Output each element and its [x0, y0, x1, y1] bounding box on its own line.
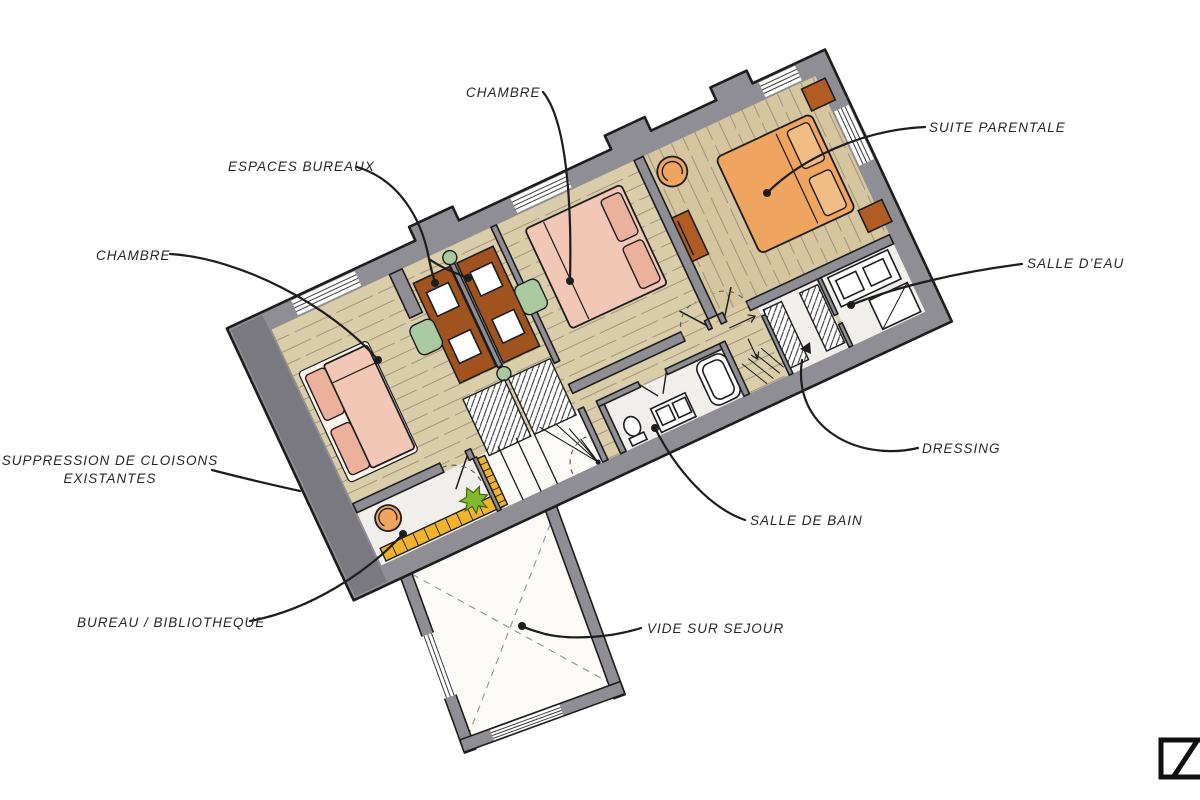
label-text: ESPACES BUREAUX	[228, 159, 375, 174]
logo-z-icon	[1161, 740, 1200, 777]
label-text: CHAMBRE	[96, 248, 171, 263]
label-text: VIDE SUR SEJOUR	[647, 621, 784, 636]
label-text: SALLE D’EAU	[1027, 256, 1124, 271]
label-text: SALLE DE BAIN	[750, 513, 863, 528]
label-text: EXISTANTES	[63, 471, 156, 486]
floor-plan-canvas: CHAMBRE SUITE PARENTALE ESPACES BUREAUX …	[0, 0, 1200, 800]
label-text: SUITE PARENTALE	[929, 120, 1066, 135]
label-text: DRESSING	[922, 441, 1001, 456]
label-text: CHAMBRE	[466, 85, 541, 100]
floor-plan-document: CHAMBRE SUITE PARENTALE ESPACES BUREAUX …	[0, 0, 1200, 800]
label-text: SUPPRESSION DE CLOISONS	[2, 453, 219, 468]
label-suppression-cloisons: SUPPRESSION DE CLOISONS EXISTANTES	[2, 453, 300, 491]
label-text: BUREAU / BIBLIOTHEQUE	[77, 615, 265, 630]
